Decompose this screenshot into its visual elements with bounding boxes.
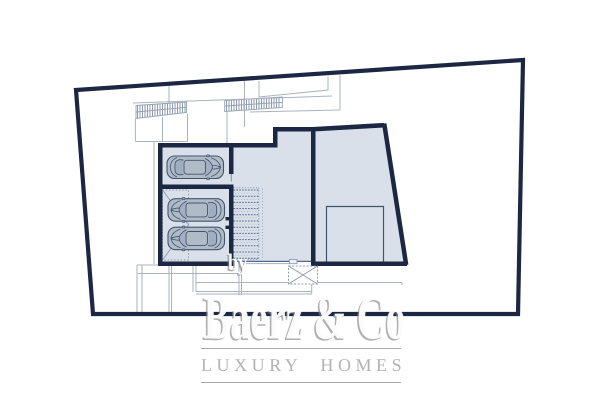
svg-text:LUXURY HOMES: LUXURY HOMES (201, 355, 406, 375)
svg-text:by: by (228, 250, 248, 275)
svg-text:Baerz & Co: Baerz & Co (204, 283, 406, 353)
